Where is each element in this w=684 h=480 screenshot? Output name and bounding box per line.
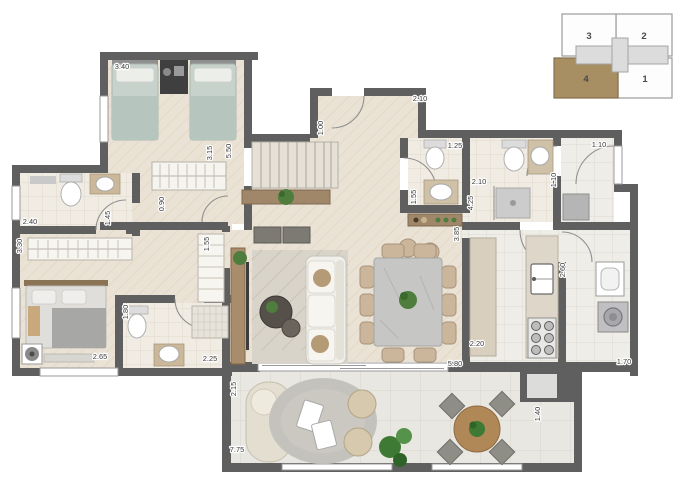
bath2-toilet-icon [504, 147, 524, 171]
dimension-label: 2.10 [472, 177, 486, 186]
dimension-label: 2.40 [23, 217, 37, 226]
dimension-label: 2.20 [470, 339, 484, 348]
shower-area [192, 306, 228, 338]
key-plan-unit-label: 3 [586, 31, 591, 42]
twin-bed-2-blanket [190, 96, 236, 140]
master-blanket [52, 308, 106, 348]
dimension-label: 2.25 [203, 354, 217, 363]
dimension-label: 1.80 [121, 305, 130, 319]
coffee-table-plant [266, 301, 278, 313]
washing-machine-icon [598, 302, 628, 332]
dimension-label: 1.10 [549, 173, 558, 187]
pouf-1 [348, 390, 376, 418]
dimension-label: 1.45 [103, 211, 112, 225]
dimension-label: 1.40 [533, 407, 542, 421]
floor-plan-page: 3241 3.402.101.003.155.502.401.453.300.9… [0, 0, 684, 480]
master-throw [28, 306, 40, 336]
key-plan-unit-label: 2 [641, 31, 646, 42]
dimension-label: 2.65 [93, 352, 107, 361]
dimension-label: 3.15 [205, 146, 214, 160]
key-plan-core-2 [612, 38, 628, 72]
staircase [242, 142, 338, 205]
twin-bed-2-pillow [194, 68, 232, 82]
dining-chair [382, 244, 404, 258]
stove-icon [528, 318, 556, 358]
dimension-label: 2.15 [229, 382, 238, 396]
dimension-label: 3.30 [15, 239, 24, 253]
bench-seat-1 [254, 227, 281, 243]
console-plant-2 [233, 251, 247, 265]
dimension-label: 1.25 [448, 141, 462, 150]
balcony-railing-2 [432, 464, 522, 470]
dimension-label: 7.75 [230, 445, 244, 454]
dining-chair [442, 294, 456, 316]
key-plan-unit-label: 4 [583, 74, 589, 85]
dining-chair [360, 266, 374, 288]
master-window [12, 288, 20, 338]
dimension-label: 3.40 [115, 62, 129, 71]
dining-chair [442, 266, 456, 288]
bedroom1-wardrobe [152, 162, 226, 190]
balcony-plant-3 [393, 453, 407, 467]
bedroom1-window [100, 96, 108, 142]
dining-chair [382, 348, 404, 362]
balcony-sliding-door [258, 363, 448, 371]
ensuite-toilet-icon [128, 314, 146, 338]
dimension-label: 2.60 [558, 263, 567, 277]
dimension-label: 0.90 [157, 197, 166, 211]
lavabo-sink-icon [430, 184, 452, 200]
lavabo-toilet-icon [426, 147, 444, 169]
sofa-pillow-2 [311, 335, 329, 353]
bed-bench [44, 354, 94, 362]
pouf-2 [344, 428, 372, 456]
sink-icon [96, 177, 114, 191]
dimension-label: 1.55 [202, 237, 211, 251]
bench-seat-2 [283, 227, 310, 243]
sofa-pillow-1 [313, 269, 331, 287]
floor-plan-image: 3241 3.402.101.003.155.502.401.453.300.9… [0, 0, 684, 480]
console-plant [278, 189, 294, 205]
dimension-label: 4.25 [466, 196, 475, 210]
sofa [306, 256, 346, 364]
bath-shelf [30, 176, 56, 184]
dimension-label: 2.10 [413, 94, 427, 103]
master-bed-headboard [24, 280, 108, 286]
toilet-tank [60, 174, 82, 182]
dining-chair [360, 322, 374, 344]
service-cabinet [563, 194, 589, 220]
dining-area [360, 244, 456, 362]
tv-icon [246, 262, 249, 350]
side-coffee-table [282, 319, 300, 337]
master-pillow-1 [32, 290, 56, 304]
dimension-label: 3.85 [452, 227, 461, 241]
balcony-column [527, 374, 557, 398]
toilet-icon [61, 182, 81, 206]
kitchen-door-floor [558, 230, 566, 262]
entry-floor [310, 96, 418, 138]
master-window-2 [40, 368, 118, 376]
kitchen-sink-icon [531, 264, 553, 294]
dining-chair [414, 348, 436, 362]
bathroom-window [12, 186, 20, 220]
bath2-round-sink-icon [531, 147, 549, 165]
master-pillow-2 [62, 290, 86, 304]
balcony-railing-1 [282, 464, 392, 470]
dimension-label: 1.70 [617, 357, 631, 366]
tv-console [231, 248, 245, 364]
key-plan-unit-label: 1 [642, 74, 648, 85]
dimension-label: 5.80 [448, 359, 462, 368]
dining-chair [360, 294, 374, 316]
dimension-label: 1.55 [409, 190, 418, 204]
service-door [614, 146, 622, 184]
balcony-plant-2 [396, 428, 412, 444]
dimension-label: 5.50 [224, 144, 233, 158]
key-plan: 3241 [554, 14, 672, 98]
nightstand [160, 60, 188, 94]
ensuite-sink-icon [159, 346, 179, 362]
dining-chair [414, 244, 436, 258]
dining-chair [442, 322, 456, 344]
twin-bed-1-blanket [112, 96, 158, 140]
dimension-label: 1.10 [592, 140, 606, 149]
dimension-label: 1.00 [316, 121, 325, 135]
